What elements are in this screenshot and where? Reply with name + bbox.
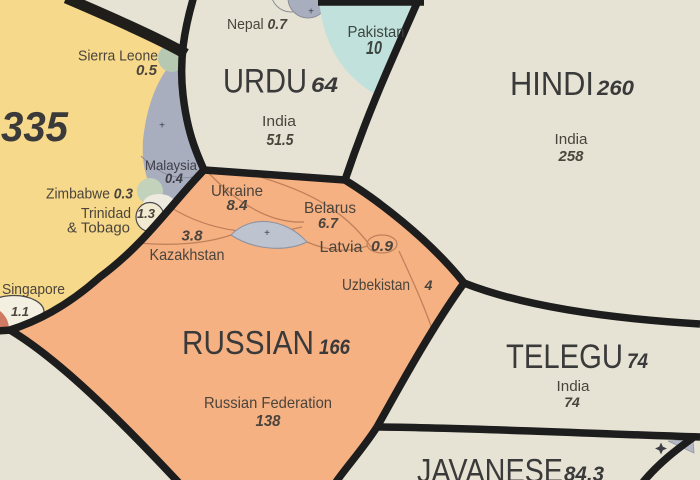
svg-text:8.4: 8.4 bbox=[227, 197, 249, 214]
svg-text:India: India bbox=[555, 131, 589, 148]
svg-text:India: India bbox=[262, 113, 297, 130]
svg-text:+: + bbox=[159, 121, 165, 132]
svg-text:& Tobago: & Tobago bbox=[67, 220, 130, 237]
svg-text:166: 166 bbox=[319, 336, 350, 359]
svg-text:0.9: 0.9 bbox=[371, 238, 394, 255]
svg-text:51.5: 51.5 bbox=[267, 132, 295, 149]
svg-text:Nepal 0.7: Nepal 0.7 bbox=[227, 16, 288, 33]
svg-text:0.5: 0.5 bbox=[136, 62, 158, 79]
svg-text:TELEGU: TELEGU bbox=[506, 338, 623, 376]
svg-text:64: 64 bbox=[311, 74, 338, 97]
svg-text:74: 74 bbox=[627, 350, 648, 373]
svg-text:74: 74 bbox=[564, 394, 580, 410]
svg-text:258: 258 bbox=[558, 148, 585, 165]
svg-text:URDU: URDU bbox=[223, 63, 307, 101]
svg-text:6.7: 6.7 bbox=[318, 215, 339, 232]
svg-text:Singapore: Singapore bbox=[2, 281, 65, 298]
svg-text:Russian Federation: Russian Federation bbox=[204, 395, 332, 412]
svg-text:0.4: 0.4 bbox=[165, 170, 183, 186]
svg-text:84.3: 84.3 bbox=[564, 463, 604, 480]
svg-text:10: 10 bbox=[366, 38, 382, 58]
svg-text:1.3: 1.3 bbox=[137, 206, 156, 221]
svg-text:260: 260 bbox=[596, 77, 634, 100]
svg-text:HINDI: HINDI bbox=[510, 65, 594, 102]
svg-text:1.1: 1.1 bbox=[11, 304, 29, 319]
svg-text:Kazakhstan: Kazakhstan bbox=[150, 247, 225, 264]
svg-text:138: 138 bbox=[256, 413, 281, 430]
svg-text:Zimbabwe 0.3: Zimbabwe 0.3 bbox=[46, 186, 134, 203]
svg-text:4: 4 bbox=[424, 277, 433, 293]
svg-text:Latvia: Latvia bbox=[320, 239, 363, 256]
svg-text:RUSSIAN: RUSSIAN bbox=[182, 324, 314, 361]
svg-text:Uzbekistan: Uzbekistan bbox=[342, 277, 410, 294]
svg-text:3.8: 3.8 bbox=[182, 228, 204, 245]
svg-text:JAVANESE: JAVANESE bbox=[417, 452, 563, 480]
svg-text:335: 335 bbox=[1, 103, 69, 150]
svg-text:India: India bbox=[557, 378, 591, 395]
svg-text:+: + bbox=[308, 7, 314, 18]
svg-text:+: + bbox=[264, 228, 270, 239]
